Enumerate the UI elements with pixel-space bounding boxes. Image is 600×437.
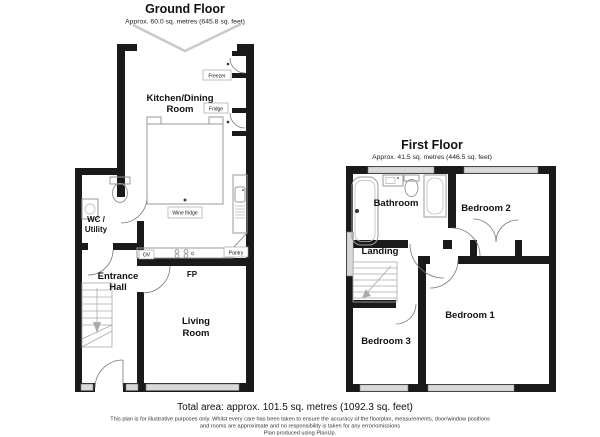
ground-floor-stairs xyxy=(82,283,112,347)
living-room-label: Living xyxy=(182,316,210,327)
closet-stub xyxy=(515,240,522,256)
pantry-diagonal xyxy=(233,233,247,248)
kitchen-island xyxy=(147,117,223,204)
bedroom2-label: Bedroom 2 xyxy=(461,203,511,214)
shower-tray xyxy=(427,178,443,214)
bedroom1-label: Bedroom 1 xyxy=(445,310,495,321)
appliance-niche-stub xyxy=(232,73,246,78)
ground-floor-subtitle: Approx. 60.0 sq. metres (645.8 sq. feet) xyxy=(125,19,245,26)
island-corner-tab xyxy=(147,117,161,124)
window xyxy=(428,385,514,391)
first-floor-subtitle: Approx. 41.5 sq. metres (446.5 sq. feet) xyxy=(372,154,492,161)
hob-icon xyxy=(175,250,194,258)
closet-stub xyxy=(470,240,477,256)
oven-label: OV xyxy=(143,253,151,259)
wine-fridge-label: Wine fridge xyxy=(172,211,198,217)
freezer-door-arc xyxy=(230,58,245,73)
entrance-hall-label: Entrance xyxy=(98,271,139,282)
first-floor-stairs xyxy=(353,262,397,302)
wall-segment xyxy=(443,240,452,249)
stairs-direction-line xyxy=(367,266,391,293)
kitchen-dining-label: Kitchen/Dining xyxy=(146,93,213,104)
disclaimer-line-1: This plan is for illustrative purposes o… xyxy=(110,417,490,423)
ground-floor-plan: Ground Floor Approx. 60.0 sq. metres (64… xyxy=(75,2,254,392)
wall-segment xyxy=(448,166,456,228)
wc-utility-label: WC / xyxy=(87,215,106,224)
wine-fridge-dot xyxy=(184,199,187,202)
landing-label: Landing xyxy=(362,246,399,257)
kitchen-counter-right xyxy=(233,175,247,248)
floorplan-page: Ground Floor Approx. 60.0 sq. metres (64… xyxy=(0,0,600,437)
living-room-label-2: Room xyxy=(183,328,210,339)
door-hinge-dot xyxy=(227,121,230,124)
fridge-door-arc xyxy=(230,113,245,128)
tap-dot xyxy=(242,189,244,191)
window xyxy=(368,167,434,173)
appliance-niche-stub xyxy=(232,108,246,113)
pantry-label: Pantry xyxy=(229,250,244,256)
counter-outline xyxy=(233,175,247,233)
freezer-label: Freezer xyxy=(208,73,226,79)
credit-text: Plan produced using PlanUp. xyxy=(264,431,337,437)
kitchen-dining-label-2: Room xyxy=(167,104,194,115)
island-outline xyxy=(147,124,223,204)
appliance-niche-stub xyxy=(232,51,246,56)
basin-bowl xyxy=(386,178,395,184)
window xyxy=(464,167,538,173)
entrance-hall-label-2: Hall xyxy=(109,282,126,293)
utility-sink-bowl xyxy=(85,204,95,214)
wall-segment xyxy=(346,300,396,308)
island-corner-tab xyxy=(209,117,223,124)
wall-segment xyxy=(113,243,144,250)
basin-tap-dot xyxy=(397,177,399,179)
ground-floor-windows xyxy=(81,384,239,391)
bathroom-label: Bathroom xyxy=(374,198,419,209)
closet-door-arc-left xyxy=(473,219,496,242)
disclaimer-line-2: and rooms are approximate and no respons… xyxy=(200,424,400,430)
first-floor-doors xyxy=(396,219,518,324)
door-swing-arc xyxy=(143,266,170,293)
wall-segment xyxy=(137,292,144,383)
total-area-text: Total area: approx. 101.5 sq. metres (10… xyxy=(177,402,413,413)
vaulted-ceiling-line xyxy=(133,24,241,51)
wall-segment xyxy=(75,168,125,175)
stair-treads xyxy=(353,268,397,298)
first-floor-labels: Bathroom Bedroom 2 Landing Bedroom 3 Bed… xyxy=(361,198,511,347)
door-hinge-dot xyxy=(227,63,230,66)
first-floor-title: First Floor xyxy=(401,138,463,152)
toilet-cistern xyxy=(404,175,419,181)
footer: Total area: approx. 101.5 sq. metres (10… xyxy=(110,402,490,437)
window xyxy=(146,384,239,391)
toilet-icon xyxy=(405,180,418,197)
window xyxy=(126,384,138,391)
wall-segment xyxy=(549,166,556,392)
stairs-arrow-head xyxy=(93,322,101,333)
bedroom3-door-arc xyxy=(396,304,416,324)
wall-segment xyxy=(458,256,550,264)
draining-board-lines xyxy=(235,206,245,218)
first-floor-plan: First Floor Approx. 41.5 sq. metres (446… xyxy=(346,138,556,392)
wall-segment xyxy=(75,168,82,392)
window xyxy=(360,385,408,391)
bedroom3-label: Bedroom 3 xyxy=(361,336,411,347)
appliance-niche-stub xyxy=(232,131,246,136)
wc-utility-label-2: Utility xyxy=(85,225,108,234)
bathroom-fixtures xyxy=(352,175,446,245)
front-door-swing-arc xyxy=(95,360,123,388)
wall-segment xyxy=(137,258,254,266)
closet-door-arc-right xyxy=(496,220,518,242)
bedroom1-door-arc xyxy=(430,260,458,288)
floorplan-drawing: Ground Floor Approx. 60.0 sq. metres (64… xyxy=(0,0,600,437)
fireplace-label: FP xyxy=(187,270,198,279)
wall-segment xyxy=(75,243,88,250)
bath-tap-dot xyxy=(355,209,359,213)
fridge-label: Fridge xyxy=(209,106,223,112)
ground-floor-title: Ground Floor xyxy=(145,2,225,16)
wall-segment xyxy=(418,256,426,392)
window xyxy=(81,384,93,391)
